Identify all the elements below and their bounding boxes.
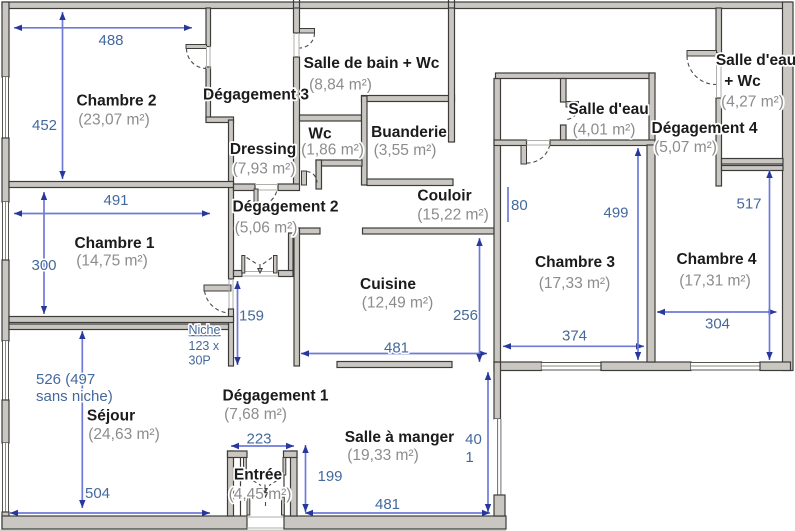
svg-text:(4,01 m²): (4,01 m²): [573, 122, 636, 139]
svg-text:Salle d'eau: Salle d'eau: [568, 101, 648, 118]
svg-text:(15,22 m²): (15,22 m²): [417, 207, 489, 224]
svg-text:Chambre 1: Chambre 1: [74, 235, 154, 252]
svg-text:123 x: 123 x: [189, 339, 220, 353]
svg-text:(19,33 m²): (19,33 m²): [347, 447, 419, 464]
svg-text:Chambre 3: Chambre 3: [535, 254, 615, 271]
svg-text:Couloir: Couloir: [417, 188, 471, 205]
svg-text:(17,31 m²): (17,31 m²): [679, 273, 751, 290]
svg-text:452: 452: [32, 117, 57, 134]
svg-text:Dégagement 1: Dégagement 1: [223, 388, 329, 405]
svg-text:159: 159: [239, 308, 264, 325]
svg-text:1: 1: [465, 449, 473, 466]
svg-text:(5,07 m²): (5,07 m²): [654, 139, 717, 156]
svg-text:(14,75 m²): (14,75 m²): [76, 253, 148, 270]
svg-text:(12,49 m²): (12,49 m²): [362, 295, 434, 312]
svg-text:(4,45 m²): (4,45 m²): [229, 486, 292, 503]
svg-text:Salle d'eau: Salle d'eau: [716, 52, 795, 69]
svg-text:504: 504: [85, 485, 110, 502]
svg-text:481: 481: [375, 496, 400, 513]
svg-text:256: 256: [453, 307, 478, 324]
svg-text:491: 491: [103, 192, 128, 209]
svg-text:(1,86 m²): (1,86 m²): [301, 142, 364, 159]
svg-text:sans niche): sans niche): [36, 388, 113, 405]
svg-text:Dégagement 4: Dégagement 4: [652, 120, 758, 137]
svg-text:Salle à manger: Salle à manger: [345, 429, 454, 446]
svg-text:(24,63 m²): (24,63 m²): [88, 426, 160, 443]
svg-text:(3,55 m²): (3,55 m²): [374, 142, 437, 159]
svg-text:Dégagement 2: Dégagement 2: [233, 199, 339, 216]
svg-text:Buanderie: Buanderie: [371, 124, 447, 141]
svg-text:223: 223: [246, 431, 271, 448]
svg-text:+ Wc: + Wc: [724, 73, 761, 90]
svg-text:40: 40: [465, 431, 482, 448]
svg-text:481: 481: [384, 340, 409, 357]
svg-text:Salle de bain + Wc: Salle de bain + Wc: [304, 55, 440, 72]
svg-text:Séjour: Séjour: [87, 408, 135, 425]
svg-text:(23,07 m²): (23,07 m²): [78, 112, 150, 129]
svg-text:(7,93 m²): (7,93 m²): [233, 161, 296, 178]
svg-text:(8,84 m²): (8,84 m²): [309, 77, 372, 94]
svg-text:Dégagement 3: Dégagement 3: [203, 87, 309, 104]
svg-text:488: 488: [98, 32, 123, 49]
svg-text:Chambre 2: Chambre 2: [76, 93, 156, 110]
svg-text:304: 304: [705, 316, 730, 333]
svg-text:(7,68 m²): (7,68 m²): [224, 406, 287, 423]
svg-text:199: 199: [317, 468, 342, 485]
svg-text:Entrée: Entrée: [234, 467, 283, 484]
svg-text:300: 300: [31, 257, 56, 274]
svg-text:(17,33 m²): (17,33 m²): [539, 275, 611, 292]
svg-text:Cuisine: Cuisine: [360, 276, 416, 293]
svg-text:374: 374: [562, 328, 587, 345]
svg-text:(4,27 m²): (4,27 m²): [721, 94, 784, 111]
svg-text:Chambre 4: Chambre 4: [676, 251, 756, 268]
svg-text:Dressing: Dressing: [230, 141, 296, 158]
svg-text:517: 517: [736, 196, 761, 213]
svg-text:Wc: Wc: [308, 126, 332, 143]
svg-text:526 (497: 526 (497: [36, 371, 95, 388]
svg-text:(5,06 m²): (5,06 m²): [235, 220, 298, 237]
svg-text:499: 499: [603, 205, 628, 222]
svg-text:30P: 30P: [189, 354, 211, 368]
svg-text:80: 80: [511, 197, 528, 214]
svg-text:Niche: Niche: [189, 323, 221, 337]
